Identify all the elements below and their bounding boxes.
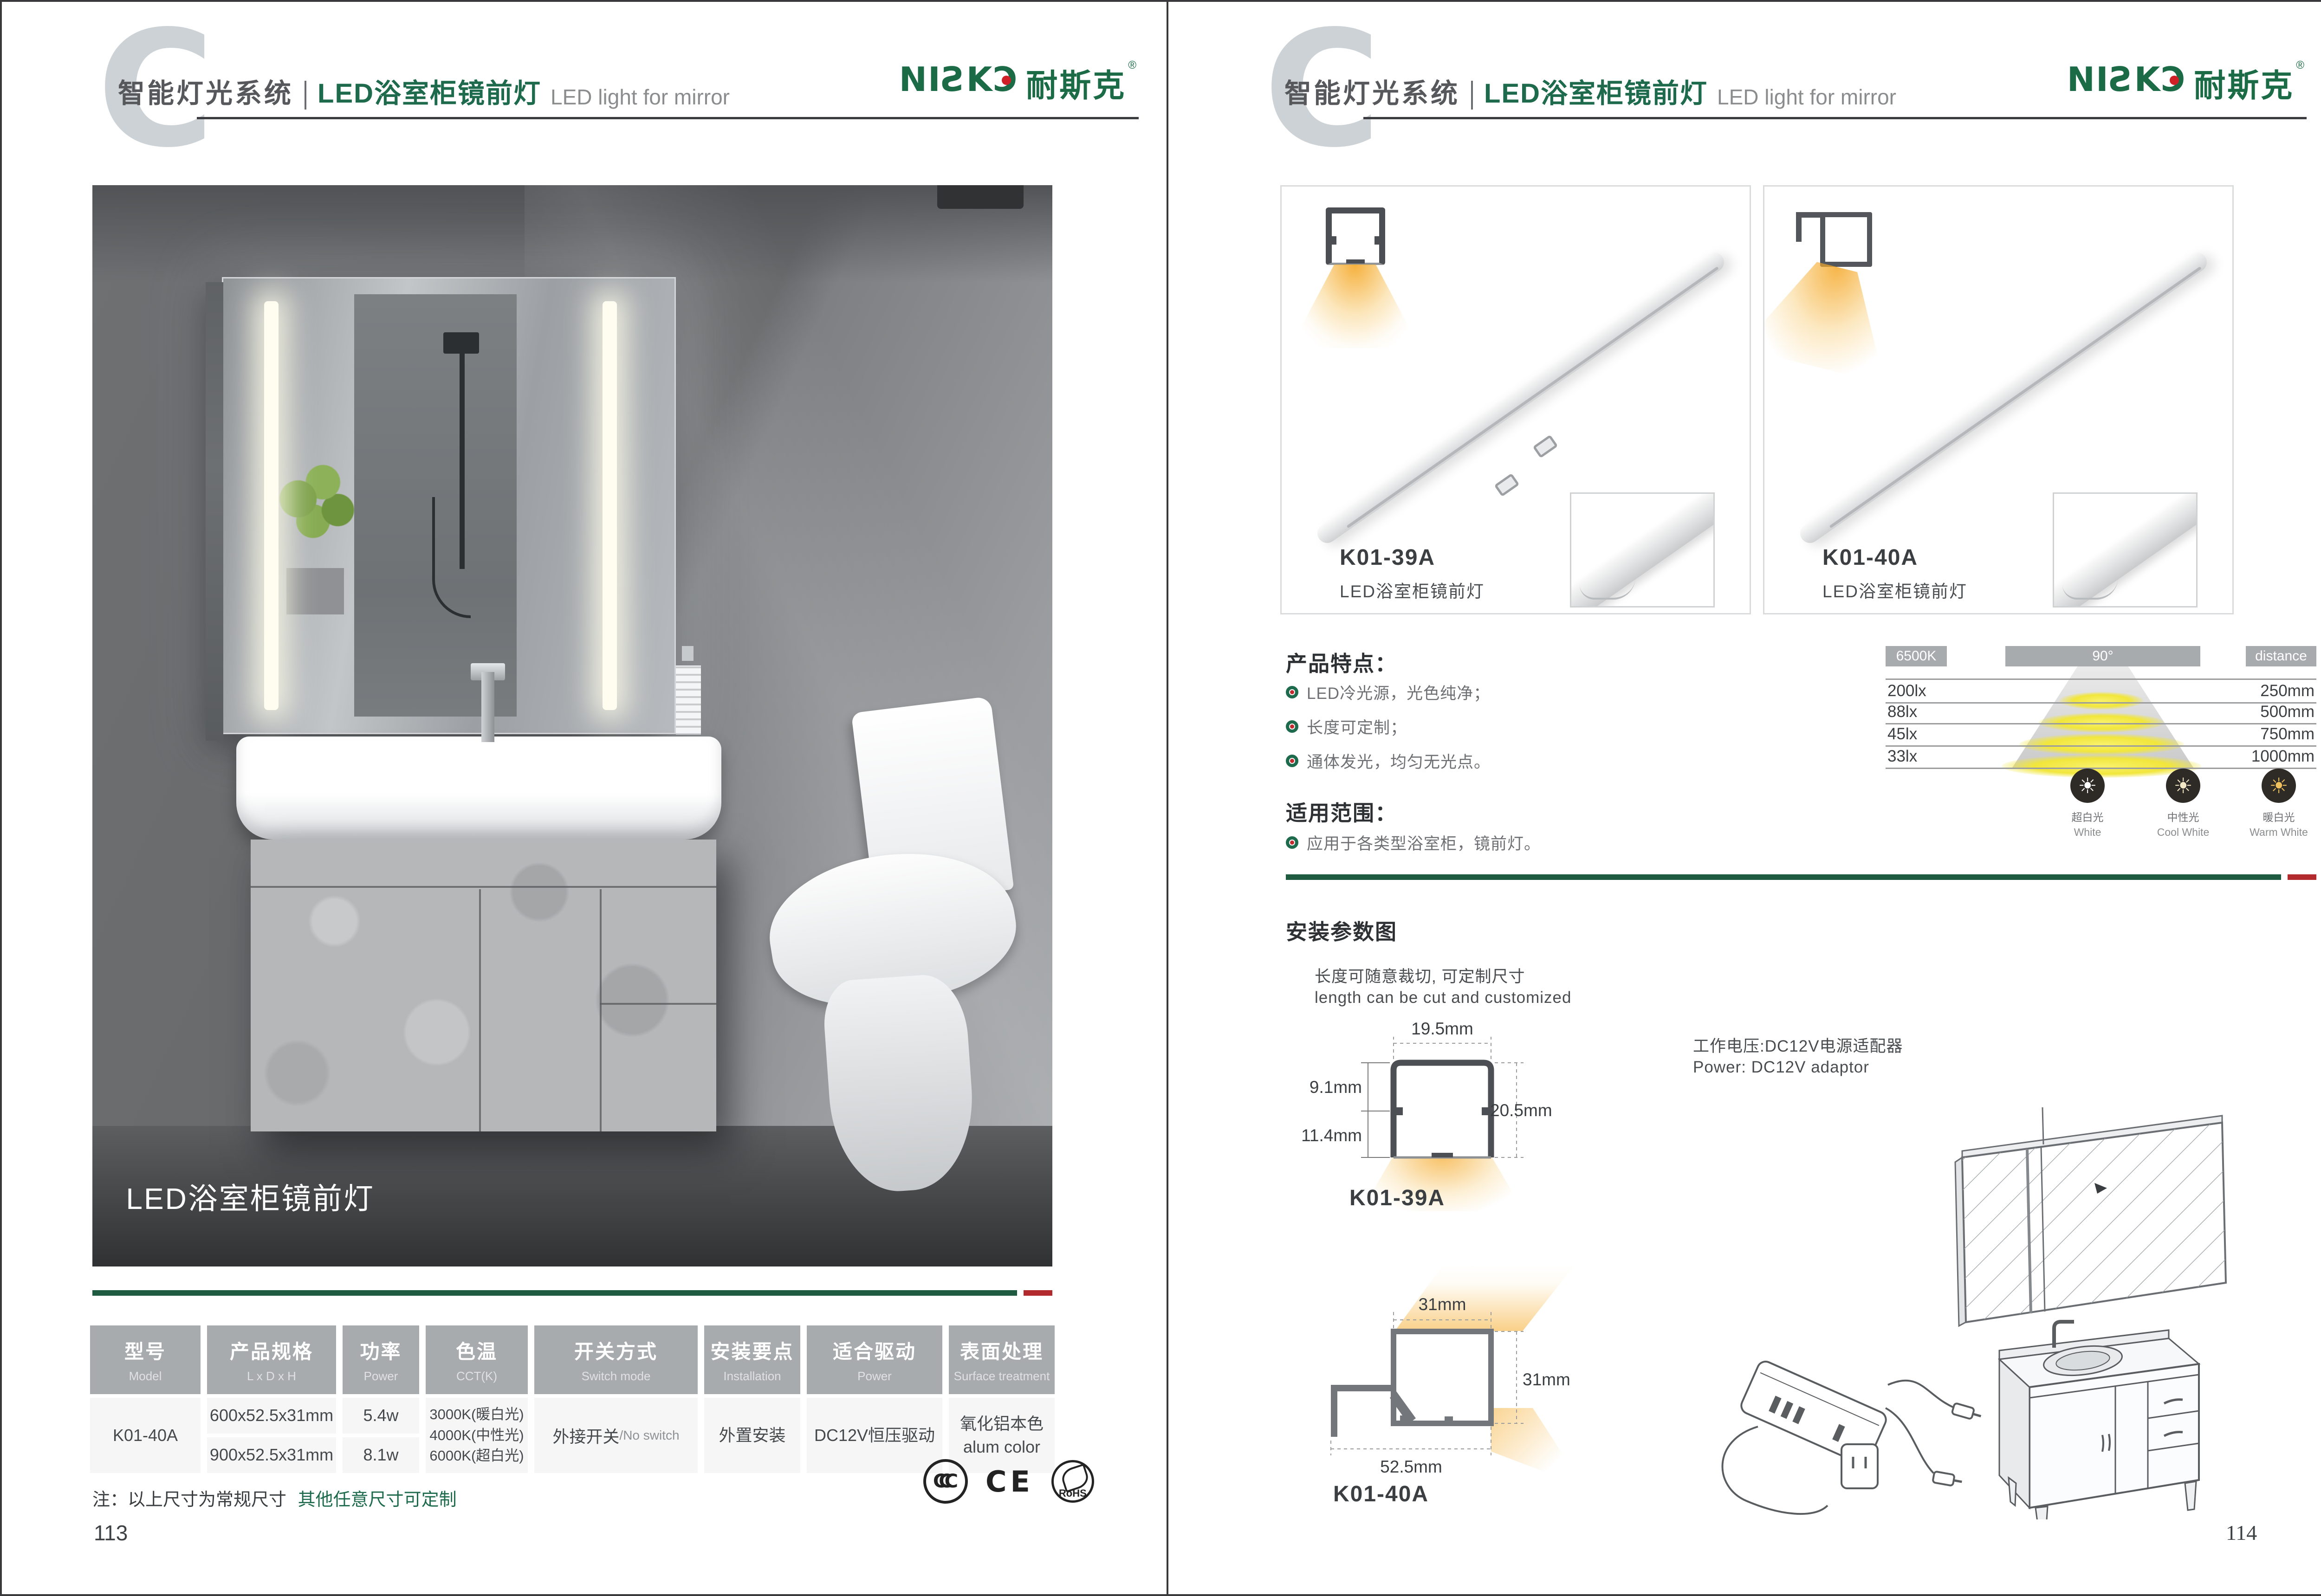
toilet-base: [822, 972, 979, 1195]
cell-power-1: 5.4w: [343, 1398, 419, 1434]
header-product-title-zh: LED浴室柜镜前灯: [1484, 71, 1708, 110]
color-temp-item: ☀ 中性光 Cool White: [2148, 769, 2218, 839]
cell-cct: 3000K(暖白光) 4000K(中性光) 6000K(超白光): [426, 1398, 528, 1473]
certification-icons: CCC CE RoHS: [923, 1459, 1094, 1504]
distance-value: 500mm: [2260, 703, 2315, 721]
lux-value: 45lx: [1887, 725, 1917, 743]
faucet-stem: [481, 672, 495, 742]
header-divider-bar: [1471, 81, 1473, 110]
brand-logo-latin: NIƧKƆ: [2067, 60, 2187, 99]
mirror-reflection: [354, 294, 517, 717]
cut-note-en: length can be cut and customized: [1315, 989, 1571, 1007]
ccc-letters: CCC: [933, 1471, 958, 1492]
cct-value: 3000K(暖白光): [429, 1404, 524, 1425]
dim-right: 20.5mm: [1490, 1101, 1552, 1120]
dimension-diagram-k01-40a: 31mm 31mm 52.5mm K01-40A: [1305, 1287, 1593, 1510]
distance-value: 1000mm: [2251, 747, 2315, 766]
col-header-driver: 适合驱动 Power: [807, 1325, 942, 1394]
header-en: L x D x H: [247, 1369, 296, 1383]
profile-hook-right: [1374, 236, 1381, 245]
header-zh: 色温: [456, 1336, 498, 1364]
feature-item: LED冷光源，光色纯净；: [1286, 680, 1490, 704]
surface-en: alum color: [963, 1435, 1040, 1459]
photometric-row: 200lx 250mm: [1886, 678, 2316, 704]
color-temp-item: ☀ 超白光 White: [2053, 769, 2122, 839]
feature-text: 长度可定制；: [1307, 715, 1407, 738]
soap-bottle-pump: [682, 646, 694, 661]
catalog-page-left: C 智能灯光系统 LED浴室柜镜前灯 LED light for mirror …: [2, 2, 1167, 1594]
page-number-right: 114: [2226, 1520, 2257, 1545]
lux-value: 33lx: [1887, 747, 1917, 766]
profile-hook-left: [1330, 236, 1336, 245]
diagram-model-label: K01-40A: [1333, 1481, 1429, 1507]
header-zh: 型号: [124, 1336, 166, 1364]
note-regular: 注：以上尺寸为常规尺寸: [92, 1490, 286, 1510]
power-note-en: Power: DC12V adaptor: [1693, 1058, 1869, 1077]
section-divider: [1286, 874, 2316, 880]
header-product-title-zh: LED浴室柜镜前灯: [318, 71, 541, 110]
photo-caption: LED浴室柜镜前灯: [126, 1175, 375, 1218]
feature-item: 通体发光，均匀无光点。: [1286, 749, 1491, 773]
plant-foliage: [268, 460, 368, 571]
dim-top: 19.5mm: [1411, 1019, 1473, 1039]
vanity-drawer-seam-horizontal: [600, 1003, 716, 1005]
col-specs: 产品规格 L x D x H 600x52.5x31mm 900x52.5x31…: [207, 1325, 336, 1473]
photometric-row: 45lx 750mm: [1886, 723, 2316, 747]
profile-drawing: [1305, 1287, 1593, 1510]
toilet: [769, 704, 1028, 1191]
dim-left-lower: 11.4mm: [1300, 1126, 1362, 1145]
installation-sketch: [1702, 1088, 2245, 1519]
product-panel-k01-40a: K01-40A LED浴室柜镜前灯: [1763, 185, 2234, 614]
mounting-clip: [1533, 435, 1558, 459]
rohs-letters: RoHS: [1054, 1487, 1092, 1499]
divider-red-bar: [2288, 874, 2316, 880]
install-title: 安装参数图: [1286, 915, 1397, 946]
header-rule: [197, 117, 1139, 119]
header-product-title-en: LED light for mirror: [1717, 84, 1896, 110]
col-header-surface: 表面处理 Surface treatment: [949, 1325, 1055, 1394]
col-header-model: 型号 Model: [90, 1325, 201, 1394]
switch-en: /No switch: [619, 1428, 679, 1443]
ccc-certification-icon: CCC: [923, 1459, 968, 1504]
col-model: 型号 Model K01-40A: [90, 1325, 201, 1473]
installation-illustration: [1702, 1088, 2245, 1519]
product-model-label: K01-39A: [1340, 545, 1435, 570]
ce-certification-icon: CE: [985, 1465, 1034, 1499]
page-number-left: 113: [94, 1520, 128, 1545]
vanity-drawer-seam-vertical: [600, 889, 602, 1131]
header-en: Switch mode: [582, 1369, 651, 1383]
plant-pot: [286, 568, 344, 614]
col-header-power: 功率 Power: [343, 1325, 419, 1394]
col-header-installation: 安装要点 Installation: [704, 1325, 800, 1394]
bullet-icon: [1286, 686, 1298, 698]
divider-gap: [2281, 874, 2288, 880]
col-switch: 开关方式 Switch mode 外接开关 /No switch: [534, 1325, 698, 1473]
vanity-cabinet: [251, 840, 716, 1131]
col-driver: 适合驱动 Power DC12V恒压驱动: [807, 1325, 942, 1473]
photometric-distance-header: distance: [2246, 646, 2316, 666]
lux-value: 88lx: [1887, 703, 1917, 721]
spec-value: 900x52.5x31mm: [210, 1444, 333, 1467]
col-header-switch: 开关方式 Switch mode: [534, 1325, 698, 1394]
product-panel-k01-39a: K01-39A LED浴室柜镜前灯: [1280, 185, 1751, 614]
wash-basin: [236, 737, 721, 839]
page-header: 智能灯光系统 LED浴室柜镜前灯 LED light for mirror: [1284, 71, 1896, 110]
bullet-icon: [1286, 836, 1298, 849]
model-value: K01-40A: [113, 1424, 178, 1447]
header-divider-bar: [305, 81, 306, 110]
product-name-label: LED浴室柜镜前灯: [1340, 577, 1485, 602]
cell-power-2: 8.1w: [343, 1437, 419, 1473]
distance-value: 250mm: [2260, 682, 2315, 700]
rohs-certification-icon: RoHS: [1051, 1460, 1094, 1503]
detail-inset-image: [2053, 492, 2198, 607]
spec-value: 600x52.5x31mm: [210, 1404, 333, 1427]
light-glow-icon: [1763, 249, 1909, 384]
page-header: 智能灯光系统 LED浴室柜镜前灯 LED light for mirror: [118, 71, 730, 110]
feature-text: LED冷光源，光色纯净；: [1307, 680, 1490, 704]
header-en: Power: [364, 1369, 398, 1383]
header-zh: 功率: [360, 1336, 402, 1364]
light-glow-icon: [1290, 265, 1420, 348]
col-power: 功率 Power 5.4w 8.1w: [343, 1325, 419, 1473]
note-highlight: 其他任意尺寸可定制: [298, 1490, 457, 1510]
hero-photo: LED浴室柜镜前灯: [92, 185, 1052, 1266]
header-zh: 开关方式: [574, 1336, 658, 1364]
header-section-title: 智能灯光系统: [118, 71, 293, 110]
brand-logo: NIƧKƆ 耐斯克 ®: [899, 60, 1136, 106]
size-note: 注：以上尺寸为常规尺寸 其他任意尺寸可定制: [92, 1485, 457, 1511]
installation-value: 外置安装: [719, 1424, 785, 1447]
mirror-cabinet-side: [206, 282, 223, 741]
product-model-label: K01-40A: [1822, 545, 1918, 570]
header-en: Power: [857, 1369, 892, 1383]
features-title: 产品特点：: [1286, 647, 1397, 678]
sun-icon: ☀: [2262, 769, 2296, 803]
divider-green-bar: [92, 1290, 1017, 1296]
profile-cross-section-icon: [1820, 212, 1872, 267]
distance-value: 750mm: [2260, 725, 2315, 743]
cct-value: 6000K(超白光): [429, 1446, 524, 1467]
bullet-icon: [1286, 755, 1298, 767]
col-header-cct: 色温 CCT(K): [426, 1325, 528, 1394]
surface-zh: 氧化铝本色: [960, 1412, 1044, 1435]
header-en: CCT(K): [456, 1369, 497, 1383]
col-cct: 色温 CCT(K) 3000K(暖白光) 4000K(中性光) 6000K(超白…: [426, 1325, 528, 1473]
mirror-cabinet: [222, 277, 676, 734]
dim-left-upper: 9.1mm: [1305, 1078, 1362, 1097]
spec-table: 型号 Model K01-40A 产品规格 L x D x H 600x52.5…: [90, 1325, 1055, 1473]
brand-logo-cjk: 耐斯克: [2194, 60, 2294, 106]
header-zh: 适合驱动: [833, 1336, 916, 1364]
divider-gap: [1017, 1290, 1024, 1296]
catalog-spread: C 智能灯光系统 LED浴室柜镜前灯 LED light for mirror …: [0, 0, 2321, 1596]
registered-mark: ®: [2296, 59, 2304, 72]
photometric-angle-header: 90°: [2005, 646, 2200, 666]
divider-red-bar: [1024, 1290, 1052, 1296]
cell-installation: 外置安装: [704, 1398, 800, 1473]
power-cord: [1580, 577, 1635, 600]
color-temp-zh: 超白光: [2072, 808, 2104, 824]
photometric-row: 88lx 500mm: [1886, 701, 2316, 724]
spec-table-body: 型号 Model K01-40A 产品规格 L x D x H 600x52.5…: [90, 1325, 1055, 1473]
cell-switch: 外接开关 /No switch: [534, 1398, 698, 1473]
photometric-cct-header: 6500K: [1886, 646, 1947, 666]
cell-spec-1: 600x52.5x31mm: [207, 1398, 336, 1434]
shower-hose-silhouette: [432, 497, 471, 618]
dimension-diagram-k01-39a: 19.5mm 9.1mm 11.4mm 20.5mm K01-39A: [1305, 1018, 1565, 1218]
color-temp-zh: 中性光: [2167, 808, 2199, 824]
header-zh: 产品规格: [230, 1336, 313, 1364]
header-en: Surface treatment: [954, 1369, 1050, 1383]
cell-model: K01-40A: [90, 1398, 201, 1473]
color-temp-en: Warm White: [2250, 826, 2308, 839]
header-section-title: 智能灯光系统: [1284, 71, 1460, 110]
detail-inset-image: [1570, 492, 1715, 607]
vanity-top-groove: [251, 886, 716, 888]
led-strip-left: [264, 301, 279, 710]
driver-value: DC12V恒压驱动: [814, 1424, 935, 1447]
profile-bottom-clip: [1346, 259, 1365, 264]
dim-right: 31mm: [1523, 1370, 1570, 1389]
color-temp-en: White: [2074, 826, 2101, 839]
cell-spec-2: 900x52.5x31mm: [207, 1437, 336, 1473]
feature-item: 长度可定制；: [1286, 715, 1407, 738]
mounting-clip: [1494, 473, 1520, 497]
catalog-page-right: C 智能灯光系统 LED浴室柜镜前灯 LED light for mirror …: [1168, 2, 2321, 1594]
header-en: Installation: [723, 1369, 781, 1383]
scope-item: 应用于各类型浴室柜，镜前灯。: [1286, 831, 1541, 854]
vanity-door-seam: [479, 889, 481, 1131]
brand-logo: NIƧKƆ 耐斯克 ®: [2067, 60, 2304, 106]
photo-ceiling-fixture: [937, 185, 1024, 209]
switch-zh: 外接开关: [552, 1423, 619, 1447]
scope-title: 适用范围：: [1286, 796, 1397, 827]
bullet-icon: [1286, 720, 1298, 733]
product-name-label: LED浴室柜镜前灯: [1822, 577, 1967, 602]
scope-text: 应用于各类型浴室柜，镜前灯。: [1307, 831, 1541, 854]
power-note-zh: 工作电压:DC12V电源适配器: [1693, 1033, 1903, 1057]
brand-logo-latin: NIƧKƆ: [899, 60, 1019, 99]
header-rule: [1363, 117, 2307, 119]
led-strip-right: [603, 301, 617, 710]
col-surface: 表面处理 Surface treatment 氧化铝本色 alum color: [949, 1325, 1055, 1473]
soap-bottle: [673, 659, 704, 741]
col-header-specs: 产品规格 L x D x H: [207, 1325, 336, 1394]
photometric-row: 33lx 1000mm: [1886, 745, 2316, 769]
color-temp-en: Cool White: [2157, 826, 2209, 839]
color-temp-zh: 暖白光: [2263, 808, 2295, 824]
divider-green-bar: [1286, 874, 2281, 880]
dim-bottom: 52.5mm: [1380, 1457, 1442, 1477]
dim-top: 31mm: [1419, 1295, 1466, 1314]
feature-text: 通体发光，均匀无光点。: [1307, 749, 1491, 773]
sun-icon: ☀: [2166, 769, 2200, 803]
plant-reflection: [268, 460, 368, 614]
brand-logo-cjk: 耐斯克: [1026, 60, 1126, 106]
power-value: 8.1w: [363, 1444, 398, 1467]
sun-icon: ☀: [2070, 769, 2105, 803]
col-installation: 安装要点 Installation 外置安装: [704, 1325, 800, 1473]
header-zh: 安装要点: [710, 1336, 794, 1364]
header-zh: 表面处理: [960, 1336, 1044, 1364]
cut-note-zh: 长度可随意裁切, 可定制尺寸: [1315, 963, 1525, 987]
color-temp-item: ☀ 暖白光 Warm White: [2244, 769, 2314, 839]
diagram-model-label: K01-39A: [1349, 1185, 1445, 1211]
cct-value: 4000K(中性光): [429, 1425, 524, 1446]
profile-mount-flange-vertical: [1796, 212, 1802, 242]
lux-value: 200lx: [1887, 682, 1926, 700]
cell-driver: DC12V恒压驱动: [807, 1398, 942, 1473]
header-product-title-en: LED light for mirror: [551, 84, 730, 110]
power-cord: [2062, 577, 2118, 600]
photometric-diagram: 6500K 90° distance 200lx 250mm 88lx 500m…: [1886, 646, 2316, 769]
power-value: 5.4w: [363, 1404, 398, 1427]
section-divider: [92, 1290, 1052, 1296]
header-en: Model: [129, 1369, 162, 1383]
profile-cross-section-icon: [1326, 207, 1385, 265]
color-temperature-legend: ☀ 超白光 White ☀ 中性光 Cool White ☀ 暖白光 Warm …: [2053, 769, 2314, 839]
registered-mark: ®: [1128, 59, 1136, 72]
